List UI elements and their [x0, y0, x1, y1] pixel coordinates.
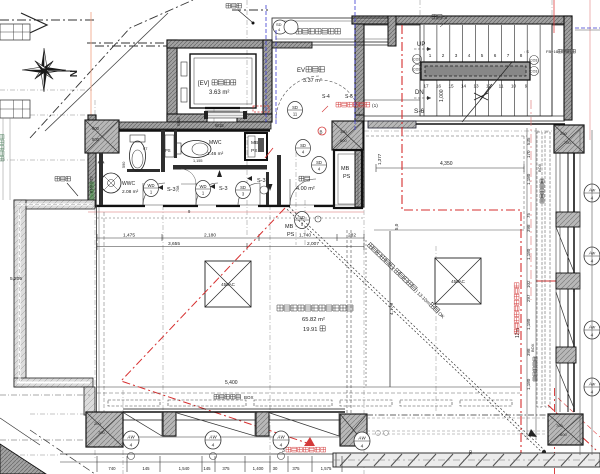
svg-text:5,205: 5,205 — [10, 276, 22, 282]
svg-text:5,0: 5,0 — [394, 223, 399, 230]
svg-text:5: 5 — [481, 53, 484, 58]
svg-text:SD: SD — [299, 215, 305, 220]
svg-text:W18: W18 — [215, 123, 224, 128]
svg-text:BOX: BOX — [530, 343, 535, 352]
svg-text:12m: 12m — [515, 328, 521, 338]
svg-text:1: 1 — [429, 53, 432, 58]
svg-text:500: 500 — [92, 137, 100, 142]
svg-text:4: 4 — [212, 443, 215, 449]
svg-text:2,180: 2,180 — [204, 233, 216, 239]
svg-text:EV: EV — [297, 68, 305, 74]
svg-text:CO3: CO3 — [413, 68, 420, 72]
svg-text:SD: SD — [292, 105, 298, 110]
svg-text:PS: PS — [251, 148, 257, 154]
svg-text:(1): (1) — [372, 103, 378, 109]
svg-text:700: 700 — [98, 430, 105, 435]
svg-text:2,007: 2,007 — [307, 241, 319, 247]
svg-text:14: 14 — [461, 84, 467, 89]
svg-text:UP: UP — [417, 42, 425, 48]
svg-text:AW: AW — [126, 435, 135, 440]
svg-text:PS: PS — [287, 232, 295, 238]
svg-text:6: 6 — [494, 53, 497, 58]
svg-text:4: 4 — [468, 53, 471, 58]
svg-text:WWC: WWC — [122, 181, 135, 187]
svg-text:S-3: S-3 — [257, 178, 266, 184]
svg-text:590: 590 — [122, 162, 126, 168]
svg-text:SD3 W18: SD3 W18 — [89, 176, 94, 194]
svg-text:1,155: 1,155 — [193, 159, 203, 163]
svg-text:300: 300 — [340, 129, 347, 134]
svg-text:700: 700 — [556, 423, 563, 428]
svg-text:SD: SD — [300, 143, 306, 148]
svg-text:200: 200 — [560, 131, 567, 136]
svg-text:70: 70 — [468, 450, 473, 455]
svg-text:700: 700 — [564, 140, 571, 145]
svg-text:S-3: S-3 — [167, 187, 176, 193]
svg-text:BOX: BOX — [537, 163, 542, 172]
svg-text:AW: AW — [276, 435, 285, 440]
svg-text:30: 30 — [273, 466, 278, 471]
svg-text:375: 375 — [222, 466, 230, 471]
svg-text:BOX: BOX — [244, 395, 254, 400]
svg-text:2.08 m²: 2.08 m² — [122, 189, 139, 195]
svg-text:WD: WD — [148, 183, 155, 188]
svg-text:4: 4 — [361, 444, 364, 450]
svg-text:9: 9 — [525, 84, 528, 89]
svg-text:S-3: S-3 — [219, 186, 228, 192]
svg-text:MB: MB — [285, 224, 294, 230]
svg-text:1,540: 1,540 — [179, 466, 190, 471]
svg-text:B: B — [320, 130, 323, 135]
svg-text:145: 145 — [142, 466, 150, 471]
svg-text:CO3: CO3 — [530, 70, 537, 74]
svg-text:DN: DN — [415, 90, 424, 96]
svg-text:375: 375 — [292, 466, 300, 471]
svg-text:1,475: 1,475 — [123, 233, 135, 239]
svg-text:[EV]: [EV] — [198, 81, 210, 87]
svg-text:CO3: CO3 — [413, 58, 420, 62]
svg-text:4: 4 — [130, 443, 133, 449]
svg-text:740: 740 — [108, 466, 116, 471]
svg-text:S-4: S-4 — [322, 94, 330, 100]
svg-text:MB: MB — [251, 140, 258, 146]
svg-text:8: 8 — [520, 53, 523, 58]
svg-text:5,400: 5,400 — [225, 380, 238, 386]
svg-text:N: N — [67, 70, 78, 77]
svg-text:17: 17 — [423, 84, 429, 89]
svg-text:1,000: 1,000 — [439, 89, 445, 102]
svg-text::S: :S — [443, 15, 447, 20]
svg-text:200: 200 — [94, 421, 101, 426]
svg-text:4: 4 — [280, 443, 283, 449]
svg-text:PS: PS — [165, 148, 171, 153]
svg-text:1,400: 1,400 — [253, 466, 264, 471]
svg-text:: S: : S — [524, 49, 529, 54]
svg-text:WD: WD — [200, 184, 207, 189]
svg-text:10: 10 — [511, 84, 517, 89]
svg-text:13: 13 — [473, 84, 479, 89]
svg-text:3.37 m²: 3.37 m² — [303, 78, 322, 84]
svg-text:W18: W18 — [176, 117, 181, 126]
svg-text:MWC: MWC — [209, 140, 222, 146]
svg-text:15: 15 — [448, 84, 454, 89]
svg-text:11: 11 — [293, 112, 298, 117]
svg-text:65.82 m²: 65.82 m² — [302, 317, 325, 323]
svg-text:600: 600 — [340, 138, 347, 143]
svg-text:3.63 m²: 3.63 m² — [209, 90, 229, 96]
svg-text:2: 2 — [442, 53, 445, 58]
svg-text:145: 145 — [203, 466, 211, 471]
svg-text:1,575: 1,575 — [321, 466, 332, 471]
svg-text:19.91: 19.91 — [303, 327, 318, 333]
svg-text:MB: MB — [341, 166, 350, 172]
svg-text:450AC: 450AC — [221, 282, 236, 287]
svg-text:708: 708 — [176, 186, 180, 192]
svg-text:16: 16 — [436, 84, 442, 89]
svg-text:SD: SD — [316, 160, 322, 165]
svg-text:1,740: 1,740 — [299, 233, 311, 239]
svg-text:S-6: S-6 — [345, 94, 353, 100]
svg-text:4,350: 4,350 — [440, 161, 453, 167]
svg-text:282: 282 — [348, 233, 356, 239]
svg-text:7: 7 — [507, 53, 510, 58]
svg-text:1,377: 1,377 — [377, 153, 382, 165]
svg-text:S-6: S-6 — [414, 108, 425, 115]
svg-text:600: 600 — [92, 126, 100, 131]
svg-text:PS: PS — [343, 174, 351, 180]
svg-text:3,655: 3,655 — [168, 241, 180, 247]
svg-text:1.46 m²: 1.46 m² — [207, 151, 224, 157]
svg-text:AW: AW — [357, 436, 366, 441]
svg-text:600: 600 — [560, 432, 567, 437]
svg-text:4.00 m²: 4.00 m² — [296, 186, 315, 192]
svg-text:CO3: CO3 — [530, 59, 537, 63]
svg-text:450AC: 450AC — [451, 279, 466, 284]
svg-text:AW: AW — [208, 435, 217, 440]
svg-text:SD: SD — [240, 185, 246, 190]
svg-text:3: 3 — [455, 53, 458, 58]
svg-text:11: 11 — [499, 84, 504, 89]
